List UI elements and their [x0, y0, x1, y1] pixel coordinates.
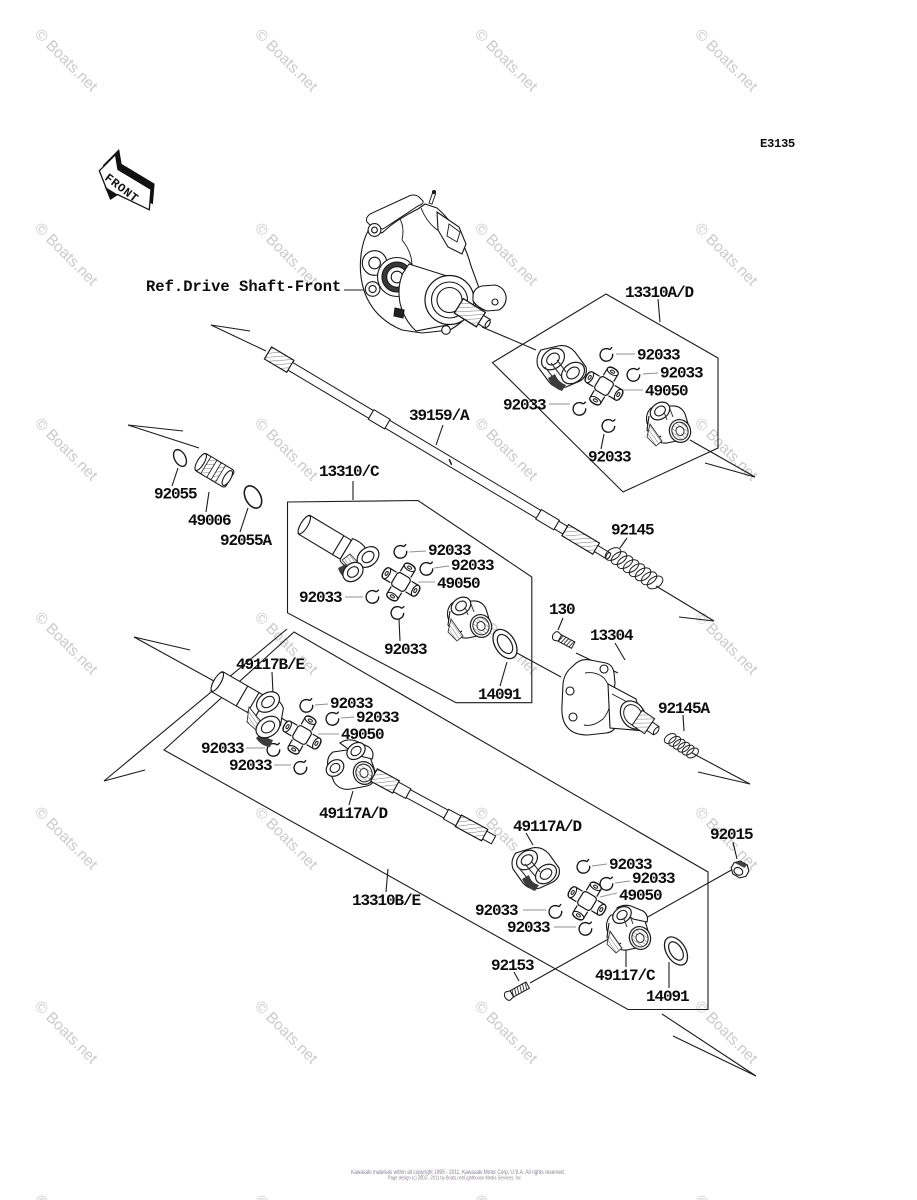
svg-text:92033: 92033 [299, 589, 342, 607]
svg-text:92145: 92145 [611, 522, 654, 540]
svg-text:14091: 14091 [478, 686, 521, 704]
svg-text:Ref.Drive Shaft-Front: Ref.Drive Shaft-Front [146, 278, 341, 296]
svg-text:92055: 92055 [154, 486, 197, 504]
svg-text:92033: 92033 [201, 740, 244, 758]
svg-text:92033: 92033 [660, 365, 703, 383]
svg-text:13304: 13304 [590, 627, 634, 645]
svg-text:92145A: 92145A [658, 700, 711, 718]
svg-text:92033: 92033 [632, 870, 675, 888]
svg-text:49117/C: 49117/C [595, 967, 656, 985]
svg-text:130: 130 [549, 601, 575, 619]
svg-text:49050: 49050 [645, 383, 688, 401]
svg-text:13310/C: 13310/C [319, 463, 380, 481]
svg-text:92033: 92033 [451, 557, 494, 575]
svg-text:92033: 92033 [637, 347, 680, 365]
svg-text:92033: 92033 [475, 902, 518, 920]
svg-text:13310B/E: 13310B/E [352, 892, 421, 910]
svg-text:92033: 92033 [356, 709, 399, 727]
svg-text:92033: 92033 [384, 641, 427, 659]
svg-text:49050: 49050 [341, 726, 384, 744]
svg-text:49050: 49050 [619, 887, 662, 905]
svg-text:92153: 92153 [491, 957, 534, 975]
svg-text:92033: 92033 [503, 397, 546, 415]
svg-text:Page design (c) 2003 - 2011 by: Page design (c) 2003 - 2011 by Boats.net… [388, 1176, 521, 1182]
svg-text:14091: 14091 [646, 988, 689, 1006]
svg-text:49006: 49006 [188, 512, 231, 530]
svg-text:49117A/D: 49117A/D [513, 818, 582, 836]
svg-text:92033: 92033 [588, 449, 631, 467]
svg-text:49117A/D: 49117A/D [319, 805, 388, 823]
svg-text:13310A/D: 13310A/D [625, 284, 694, 302]
svg-text:49117B/E: 49117B/E [236, 656, 305, 674]
svg-text:49050: 49050 [437, 575, 480, 593]
svg-text:E3135: E3135 [760, 137, 795, 151]
svg-text:92055A: 92055A [220, 532, 273, 550]
svg-text:92015: 92015 [710, 826, 753, 844]
svg-text:39159/A: 39159/A [409, 407, 470, 425]
svg-text:92033: 92033 [229, 757, 272, 775]
svg-text:92033: 92033 [507, 919, 550, 937]
